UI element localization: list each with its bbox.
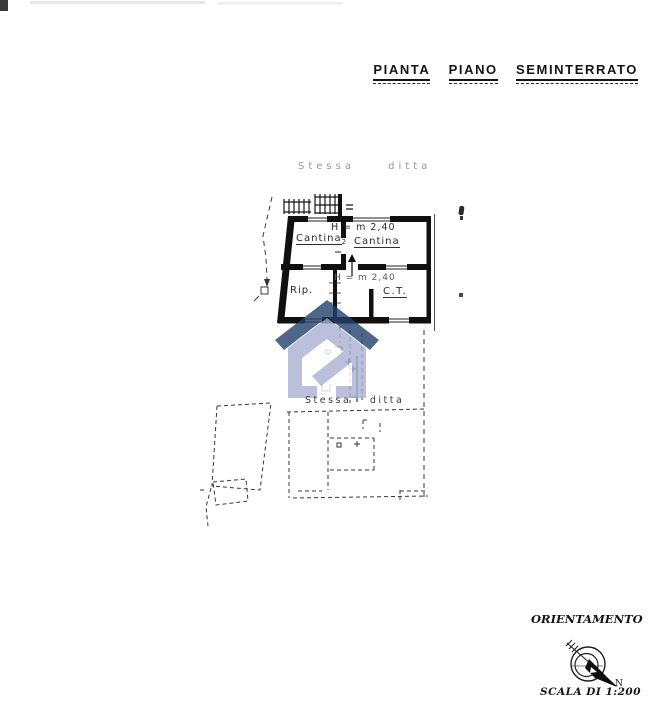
room-label-cantina: Cantina [354, 236, 400, 247]
door-arrow-head [348, 254, 356, 262]
title-word-seminterrato: SEMINTERRATO [516, 62, 638, 81]
boundary-lines [254, 197, 272, 301]
scan-artifacts [0, 0, 465, 297]
room-label-rip: Rip. [290, 285, 313, 296]
room-label-cantina-2-sub: 2 [342, 238, 347, 246]
scale-note: SCALA DI 1:200 [540, 686, 641, 698]
scanned-floorplan-page: PIANTA PIANO SEMINTERRATO Stessa ditta H… [0, 0, 648, 701]
compass-icon [566, 640, 617, 687]
title-word-piano: PIANO [449, 62, 498, 81]
title-word-pianta: PIANTA [373, 62, 430, 81]
adjacent-buildings [200, 403, 428, 526]
drawing-title: PIANTA PIANO SEMINTERRATO [360, 62, 638, 81]
ceiling-height-note-lower: H = m 2,40 [334, 273, 396, 283]
site-note-upper: Stessa ditta [298, 161, 431, 172]
room-label-ct: C.T. [383, 286, 407, 297]
floorplan-drawing [0, 0, 648, 701]
site-note-lower: Stessa ditta [305, 395, 404, 406]
ceiling-height-note-upper: H = m 2,40 [331, 222, 396, 233]
room-label-cantina-2: Cantina2 [296, 233, 347, 246]
house-logo-watermark [275, 300, 379, 398]
orientation-heading: ORIENTAMENTO [531, 612, 641, 626]
